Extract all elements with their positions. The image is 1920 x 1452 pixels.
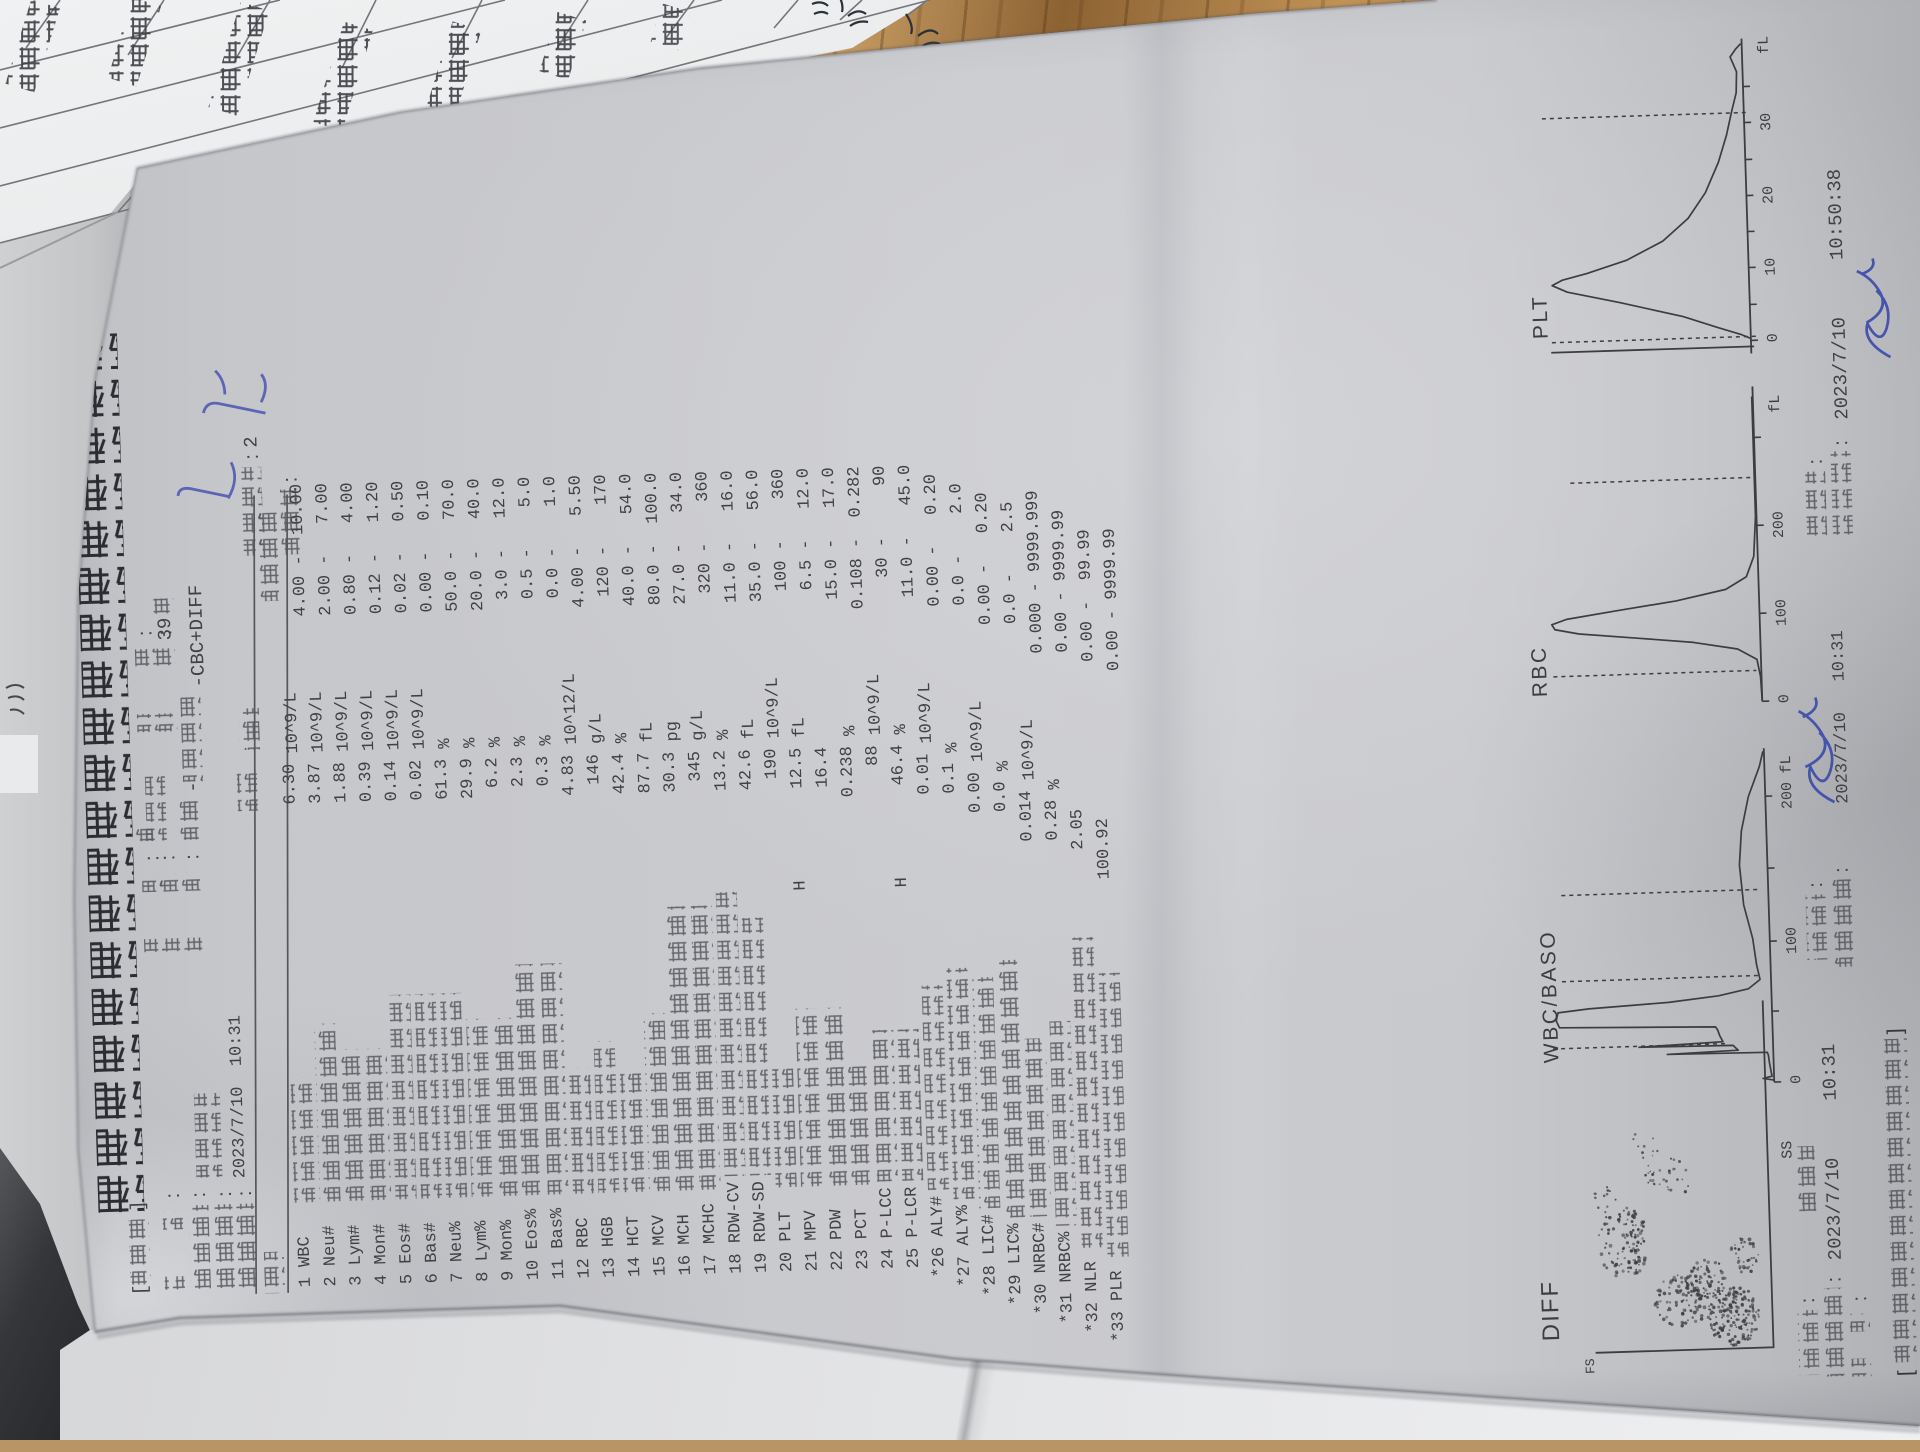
svg-text:0: 0 [1776, 694, 1793, 704]
svg-text::: : [1823, 1276, 1845, 1282]
svg-text:200: 200 [1770, 511, 1788, 539]
svg-text:6.2: 6.2 [483, 757, 506, 900]
svg-text:10^9/L: 10^9/L [1019, 719, 1040, 781]
svg-text:14 HCT: 14 HCT [624, 1215, 645, 1277]
svg-text::: : [234, 1190, 256, 1196]
svg-text:0.00 - 99.99: 0.00 - 99.99 [1075, 529, 1099, 693]
svg-text:%: % [461, 737, 480, 749]
svg-text:%: % [537, 734, 556, 746]
svg-text:11.0 - 45.0: 11.0 - 45.0 [896, 465, 920, 629]
svg-text:0.108 - 0.282: 0.108 - 0.282 [845, 466, 869, 630]
svg-text:%: % [487, 736, 506, 748]
svg-text:1 WBC: 1 WBC [295, 1236, 316, 1288]
svg-text:RBC: RBC [1527, 645, 1552, 698]
svg-text:13 HGB: 13 HGB [599, 1216, 620, 1278]
svg-text:0.000 - 9999.999: 0.000 - 9999.999 [1024, 490, 1049, 674]
svg-text:9 Mon%: 9 Mon% [498, 1219, 519, 1282]
svg-text:10^9/L: 10^9/L [333, 690, 354, 752]
svg-text:10^9/L: 10^9/L [282, 692, 303, 754]
svg-text:%: % [512, 735, 531, 747]
svg-text:6 Bas#: 6 Bas# [422, 1222, 443, 1284]
svg-text:18 RDW-CV: 18 RDW-CV [725, 1181, 747, 1274]
svg-text:11.0 - 16.0: 11.0 - 16.0 [719, 470, 743, 634]
svg-text:0.1: 0.1 [940, 763, 963, 906]
svg-text:10^9/L: 10^9/L [967, 700, 988, 762]
svg-text:%: % [841, 725, 860, 737]
svg-text:H 46.4: H 46.4 [889, 744, 912, 887]
svg-text:100: 100 [1783, 927, 1801, 955]
svg-text:10^9/L: 10^9/L [764, 677, 785, 739]
svg-text:0.00 - 9999.99: 0.00 - 9999.99 [1101, 528, 1125, 702]
svg-text:17 MCHC: 17 MCHC [700, 1203, 721, 1275]
svg-text:345: 345 [686, 751, 709, 894]
svg-text:146: 146 [585, 754, 608, 897]
svg-text:0: 0 [1765, 333, 1782, 343]
svg-text:20.0 - 40.0: 20.0 - 40.0 [465, 478, 489, 642]
svg-text:2 Neu#: 2 Neu# [320, 1225, 341, 1287]
svg-text::: : [280, 476, 302, 482]
svg-text:0.5 - 5.0: 0.5 - 5.0 [516, 476, 540, 640]
svg-text:13.2: 13.2 [711, 750, 734, 893]
svg-text:2.00 - 7.00: 2.00 - 7.00 [313, 483, 337, 647]
svg-text:20 PLT: 20 PLT [777, 1211, 798, 1273]
svg-text:0.80 - 4.00: 0.80 - 4.00 [338, 482, 362, 646]
svg-text:1.88: 1.88 [331, 762, 354, 905]
svg-text:4 Mon#: 4 Mon# [371, 1223, 392, 1285]
svg-text:15 MCV: 15 MCV [650, 1214, 671, 1277]
svg-text::: : [1830, 440, 1852, 446]
svg-text:100 - 360: 100 - 360 [769, 469, 793, 633]
svg-text:100.92: 100.92 [1094, 818, 1117, 961]
svg-text::: : [214, 1191, 236, 1197]
svg-text:20: 20 [1760, 186, 1778, 205]
svg-text:6.30: 6.30 [281, 763, 304, 906]
svg-text:80.0 - 100.0: 80.0 - 100.0 [642, 473, 666, 637]
svg-text:g/L: g/L [689, 710, 709, 741]
svg-text:SS: SS [1779, 1140, 1797, 1159]
svg-text:2023/7/10 10:31: 2023/7/10 10:31 [1829, 630, 1853, 804]
svg-text:0.0 - 1.0: 0.0 - 1.0 [541, 476, 565, 640]
svg-text:4.00 - 10.00: 4.00 - 10.00 [288, 484, 312, 648]
svg-text:2: 2 [240, 436, 262, 448]
svg-text:10^12/L: 10^12/L [561, 673, 582, 745]
svg-text:8 Lym%: 8 Lym% [472, 1219, 493, 1282]
svg-text:10: 10 [1762, 258, 1780, 277]
svg-text:7 Neu%: 7 Neu% [447, 1220, 468, 1283]
svg-text:fL: fL [1767, 394, 1785, 413]
svg-text:*30 NRBC#: *30 NRBC# [1031, 1222, 1053, 1314]
svg-text:0.02: 0.02 [407, 759, 430, 902]
svg-text:10^9/L: 10^9/L [916, 682, 937, 744]
svg-text:0.00 - 0.20: 0.00 - 0.20 [922, 474, 946, 638]
svg-text:0.0: 0.0 [991, 781, 1014, 924]
svg-text:PLT: PLT [1528, 294, 1552, 339]
svg-text:%: % [715, 729, 734, 741]
svg-text:0.0 - 2.0: 0.0 - 2.0 [947, 483, 971, 647]
svg-text:%: % [995, 760, 1014, 772]
svg-text:88: 88 [863, 745, 886, 888]
svg-text:61.3: 61.3 [433, 759, 456, 902]
svg-text:0.0 - 2.5: 0.0 - 2.5 [998, 501, 1022, 665]
svg-text::: : [157, 855, 179, 861]
svg-text:30.3: 30.3 [661, 751, 684, 894]
svg-text:0.00 - 0.20: 0.00 - 0.20 [973, 492, 997, 656]
svg-text:4.83: 4.83 [559, 755, 582, 898]
svg-text:5 Eos#: 5 Eos# [396, 1223, 417, 1285]
svg-text:0.01: 0.01 [914, 754, 937, 897]
svg-text:16.4: 16.4 [813, 747, 836, 890]
svg-text:0.14: 0.14 [382, 760, 405, 903]
svg-text:*32 NLR: *32 NLR [1082, 1261, 1103, 1333]
svg-text:100: 100 [1773, 599, 1791, 627]
svg-text:0.12 - 1.20: 0.12 - 1.20 [364, 481, 388, 645]
svg-text:15.0 - 17.0: 15.0 - 17.0 [820, 467, 844, 631]
svg-text:40.0 - 54.0: 40.0 - 54.0 [617, 473, 641, 637]
svg-text:0: 0 [1788, 1075, 1805, 1085]
svg-text:3.0 - 12.0: 3.0 - 12.0 [490, 477, 514, 641]
svg-text:fL: fL [740, 718, 760, 739]
svg-text:0.00 - 9999.99: 0.00 - 9999.99 [1049, 510, 1073, 684]
svg-text:g/L: g/L [587, 713, 607, 744]
svg-text:3 Lym#: 3 Lym# [346, 1224, 367, 1286]
svg-text:0.238: 0.238 [838, 746, 861, 889]
svg-text::: : [154, 629, 176, 635]
svg-text:50.0 - 70.0: 50.0 - 70.0 [440, 479, 464, 643]
svg-text:10^9/L: 10^9/L [865, 674, 886, 736]
svg-text:fL: fL [1755, 36, 1773, 55]
svg-text:10^9/L: 10^9/L [308, 691, 329, 753]
svg-text:0.02 - 0.50: 0.02 - 0.50 [389, 480, 413, 644]
svg-text:25 P-LCR: 25 P-LCR [903, 1186, 925, 1268]
svg-text:30 - 90: 30 - 90 [871, 465, 895, 629]
svg-text:*27 ALY%: *27 ALY% [954, 1204, 976, 1287]
svg-text:42.6: 42.6 [737, 749, 760, 892]
svg-text:10^9/L: 10^9/L [409, 688, 430, 750]
svg-text:27.0 - 34.0: 27.0 - 34.0 [668, 472, 692, 636]
svg-text::: : [1797, 1297, 1819, 1303]
svg-text:11 Bas%: 11 Bas% [548, 1207, 569, 1280]
svg-text:12 RBC: 12 RBC [574, 1217, 595, 1279]
svg-text:DIFF: DIFF [1536, 1279, 1565, 1341]
svg-text::: : [1831, 867, 1853, 873]
svg-text:2.3: 2.3 [509, 756, 532, 899]
svg-text:24 P-LCC: 24 P-LCC [877, 1187, 899, 1269]
svg-text:[: [ [130, 1284, 152, 1296]
svg-text:22 PDW: 22 PDW [827, 1208, 848, 1271]
svg-text:21 MPV: 21 MPV [802, 1209, 823, 1272]
svg-text::: : [1805, 882, 1827, 888]
svg-text:%: % [613, 732, 632, 744]
svg-text:16 MCH: 16 MCH [675, 1214, 696, 1276]
svg-text:pg: pg [664, 721, 684, 742]
svg-text:H 12.5: H 12.5 [787, 747, 810, 890]
svg-text:320 - 360: 320 - 360 [693, 471, 717, 635]
svg-text:19 RDW-SD: 19 RDW-SD [750, 1181, 772, 1273]
svg-text:2023/7/10 10:31: 2023/7/10 10:31 [226, 1015, 250, 1179]
svg-text:2023/7/10 10:31: 2023/7/10 10:31 [1818, 1043, 1847, 1260]
svg-text:0.00 - 0.10: 0.00 - 0.10 [414, 480, 438, 644]
svg-text:-: - [182, 781, 204, 793]
svg-text:6.5 - 12.0: 6.5 - 12.0 [794, 468, 818, 632]
svg-text:87.7: 87.7 [635, 752, 658, 895]
svg-text:120 - 170: 120 - 170 [592, 474, 616, 638]
svg-text:2.05: 2.05 [1068, 809, 1091, 952]
svg-text:3.87: 3.87 [306, 763, 329, 906]
svg-text:]: ] [127, 1200, 149, 1212]
svg-text:fL: fL [638, 722, 658, 743]
svg-text:42.4: 42.4 [610, 753, 633, 896]
svg-text:-CBC+DIFF: -CBC+DIFF [185, 584, 210, 687]
svg-text:0.3: 0.3 [534, 755, 557, 898]
svg-text:fL: fL [790, 717, 810, 738]
svg-text:WBC/BASO: WBC/BASO [1536, 930, 1563, 1064]
svg-text::: : [1805, 459, 1827, 465]
svg-text:4.00 - 5.50: 4.00 - 5.50 [567, 475, 591, 639]
svg-text:190: 190 [762, 748, 785, 891]
svg-text::: : [1849, 1296, 1871, 1302]
svg-text:10^9/L: 10^9/L [384, 689, 405, 751]
svg-text::: : [134, 630, 156, 636]
svg-text:*26 ALY#: *26 ALY# [928, 1195, 950, 1277]
svg-text:]: ] [1884, 1028, 1907, 1035]
svg-text:0.39: 0.39 [357, 761, 380, 904]
svg-text::: : [162, 1193, 184, 1199]
svg-text:%: % [892, 723, 911, 735]
svg-text::: : [241, 454, 263, 460]
svg-text:*29 LIC%: *29 LIC% [1005, 1222, 1027, 1305]
svg-text::: : [181, 854, 203, 860]
svg-text:10^9/L: 10^9/L [358, 690, 379, 752]
svg-text:30: 30 [1758, 113, 1776, 132]
svg-text:*28 LIC#: *28 LIC# [980, 1214, 1002, 1296]
svg-text:10 Eos%: 10 Eos% [523, 1208, 544, 1281]
svg-text::: : [188, 1192, 210, 1198]
svg-text:[: [ [1894, 1370, 1917, 1377]
svg-text:200: 200 [1779, 782, 1797, 810]
svg-text:35.0 - 56.0: 35.0 - 56.0 [744, 469, 768, 633]
svg-text:0.014: 0.014 [1017, 790, 1040, 933]
svg-text:*31 NRBC%: *31 NRBC% [1056, 1231, 1078, 1324]
svg-text:2023/7/10 10:50:38: 2023/7/10 10:50:38 [1824, 169, 1854, 420]
svg-text:fL: fL [1778, 755, 1796, 774]
svg-text:%: % [943, 741, 962, 753]
svg-text:%: % [436, 737, 455, 749]
svg-text:29.9: 29.9 [458, 758, 481, 901]
svg-text:*33 PLR: *33 PLR [1108, 1270, 1129, 1342]
svg-text:0.00: 0.00 [966, 772, 989, 915]
svg-text:%: % [1046, 778, 1065, 790]
svg-text:FS: FS [1583, 1358, 1598, 1374]
svg-text:0.28: 0.28 [1043, 800, 1066, 943]
svg-text:23 PCT: 23 PCT [852, 1208, 873, 1270]
